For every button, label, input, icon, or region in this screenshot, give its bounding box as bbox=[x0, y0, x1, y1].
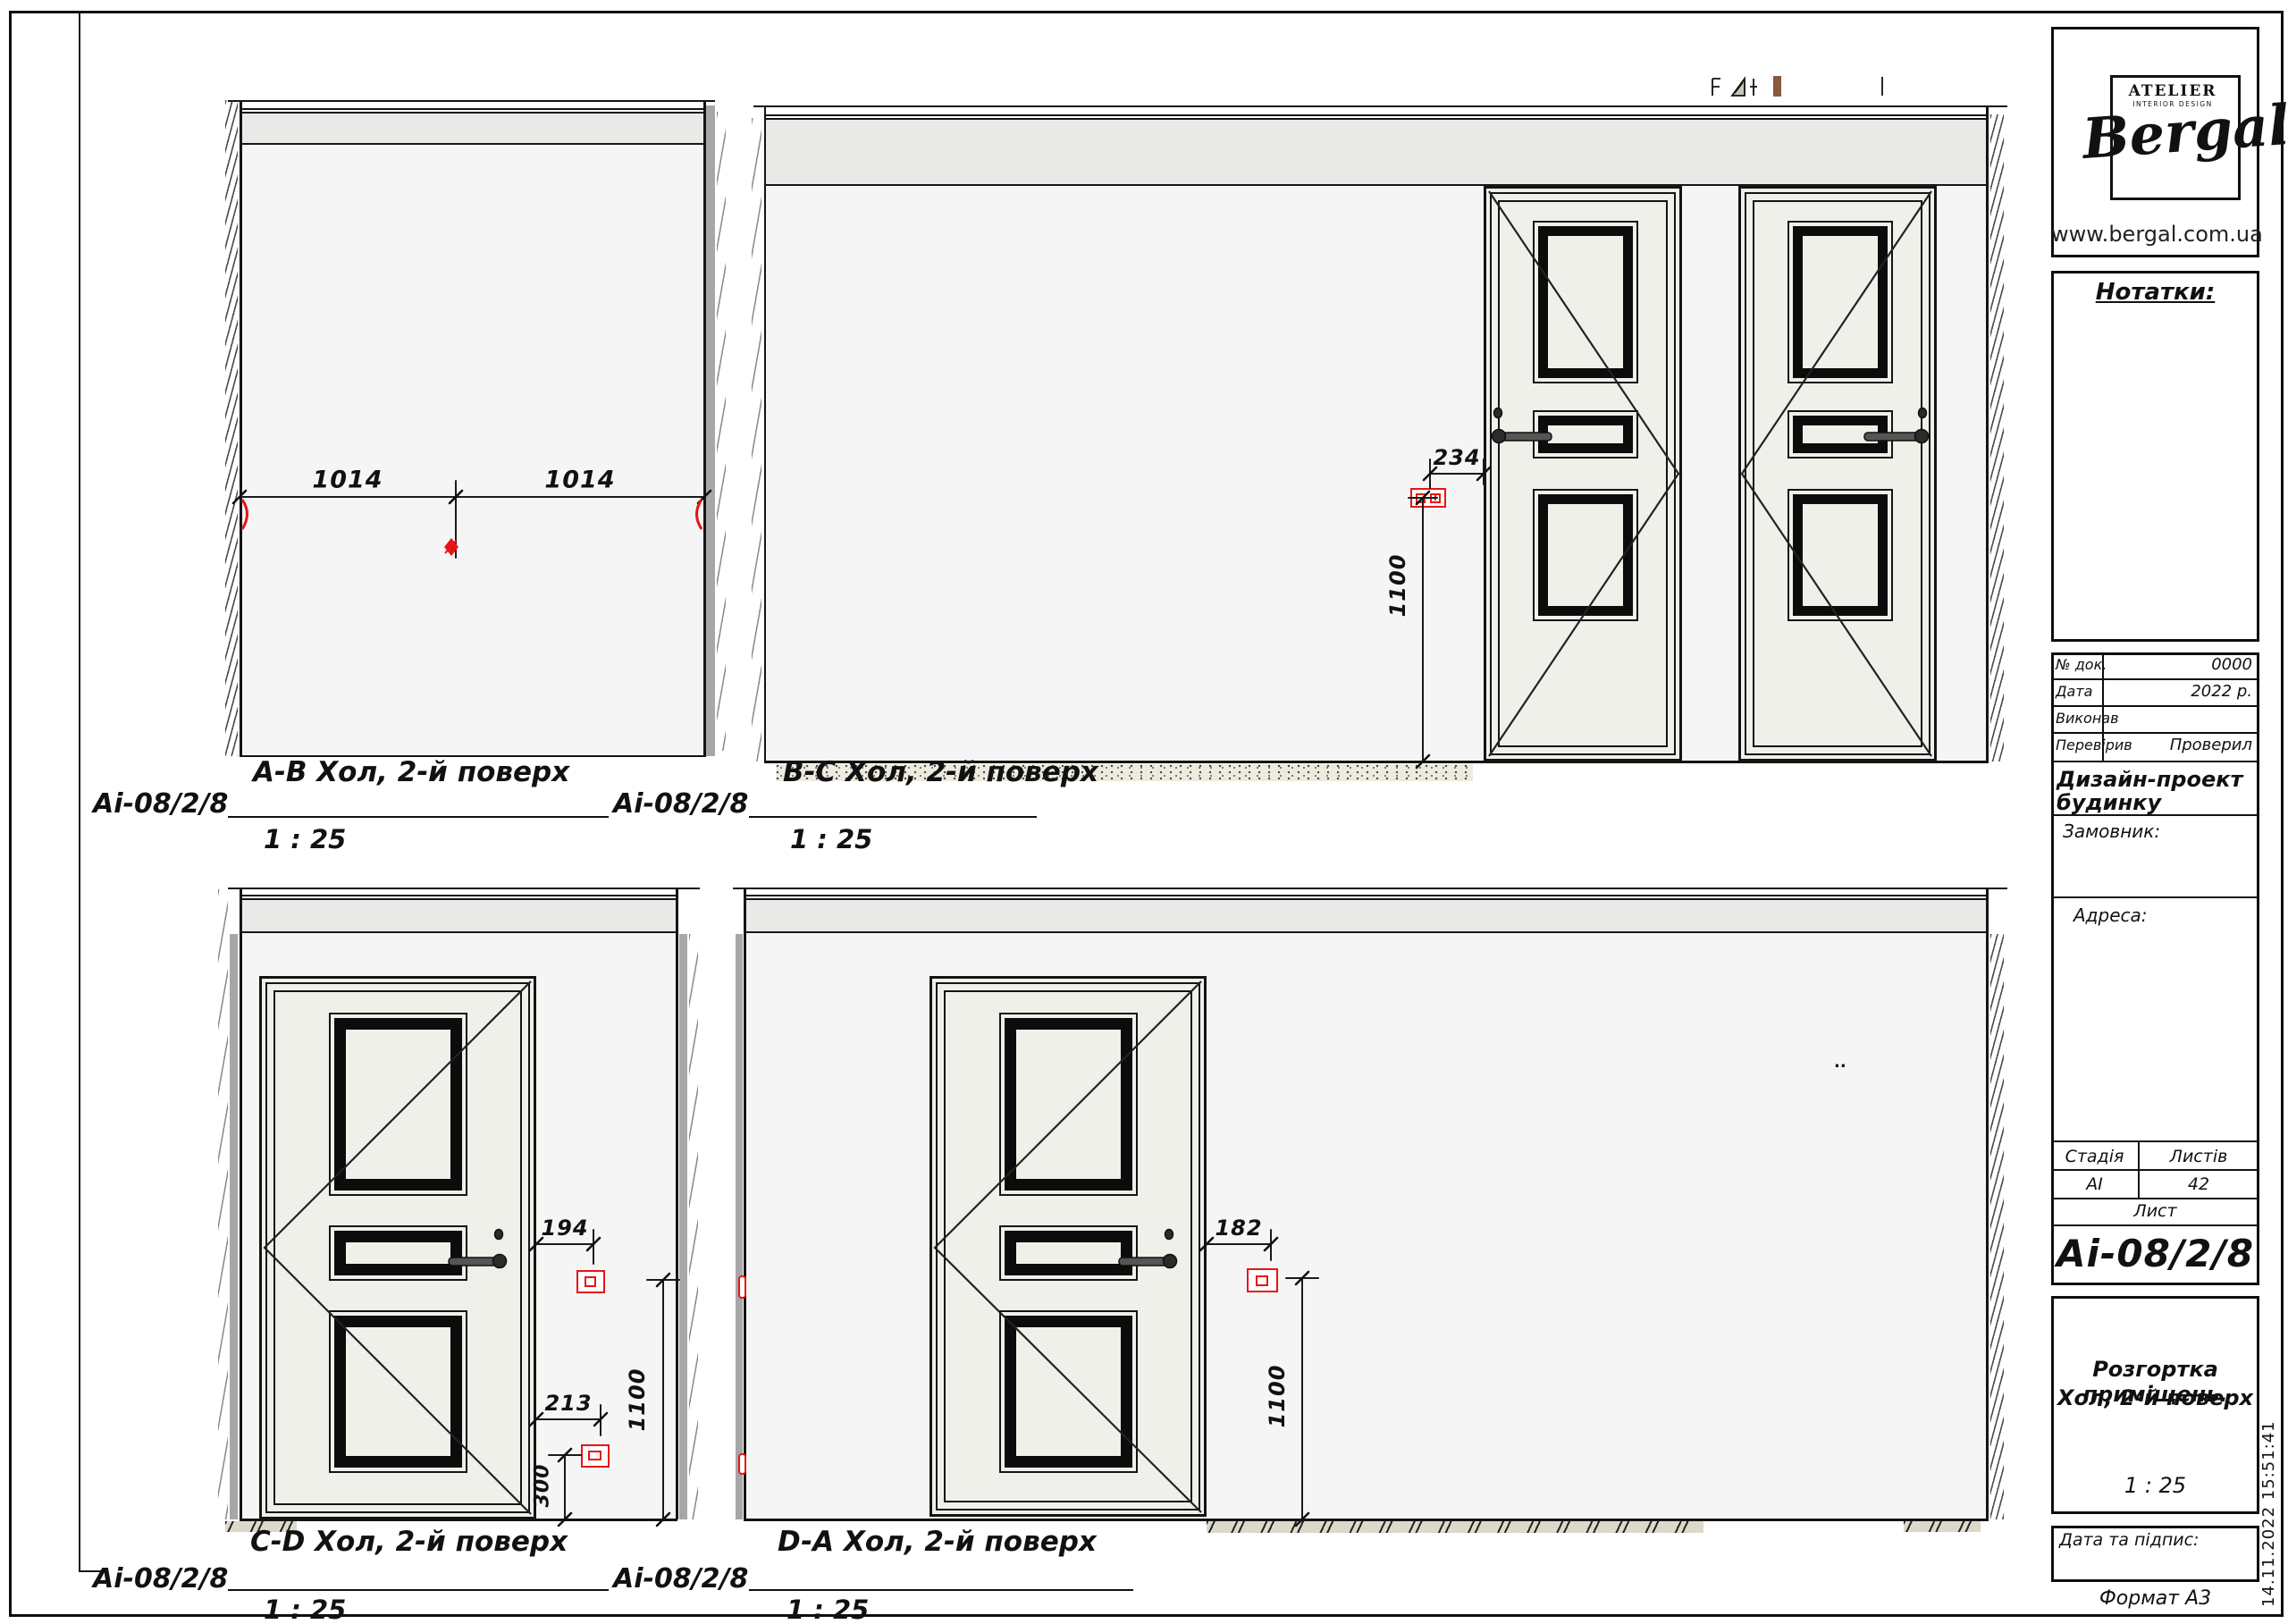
tb-line bbox=[2051, 896, 2259, 898]
doc-row-value: 0000 bbox=[2211, 655, 2252, 674]
client-label: Замовник: bbox=[2063, 820, 2160, 842]
project-title-2: будинку bbox=[2057, 790, 2161, 815]
tb-line bbox=[2138, 1140, 2140, 1198]
drawing-linework bbox=[0, 0, 2288, 1624]
sheets-value: 42 bbox=[2138, 1174, 2259, 1194]
drawing-scale: 1 : 25 bbox=[2051, 1473, 2259, 1498]
bc-view-scale: 1 : 25 bbox=[790, 824, 872, 854]
bc-title-underline bbox=[749, 816, 1037, 818]
doc-row-value: 2022 р. bbox=[2191, 682, 2252, 701]
sheets-header: Листів bbox=[2138, 1147, 2259, 1166]
notes-label: Нотатки: bbox=[2051, 279, 2259, 306]
project-title-1: Дизайн-проект bbox=[2057, 767, 2242, 792]
red-door-swing-marks bbox=[242, 500, 702, 529]
cd-title-underline bbox=[228, 1589, 609, 1591]
logo-website: www.bergal.com.ua bbox=[2051, 222, 2259, 247]
doc-row-3: Перевірив Проверил bbox=[2051, 733, 2259, 762]
drawing-sheet: 1014 1014 234 1100 bbox=[0, 0, 2288, 1624]
doc-row-label: Перевірив bbox=[2056, 736, 2132, 753]
da-view-title: D-А Хол, 2-й поверх bbox=[778, 1526, 1097, 1558]
ab-ref-left: Аі-08/2/8 bbox=[93, 788, 228, 820]
doc-row-1: Дата 2022 р. bbox=[2051, 679, 2259, 707]
stage-value: АІ bbox=[2051, 1174, 2138, 1194]
doc-row-label: Виконав bbox=[2056, 710, 2119, 727]
tb-line bbox=[2051, 1140, 2259, 1142]
doc-row-value: Проверил bbox=[2170, 736, 2252, 754]
ceiling-detail-glyphs bbox=[1712, 77, 1882, 96]
cd-ref-right: Аі-08/2/8 bbox=[613, 1563, 748, 1595]
tb-line bbox=[2051, 1198, 2259, 1199]
ab-ref-right: Аі-08/2/8 bbox=[613, 788, 748, 820]
bc-view-title: В-С Хол, 2-й поверх bbox=[783, 756, 1098, 788]
tb-line bbox=[2051, 814, 2259, 816]
stage-header: Стадія bbox=[2051, 1147, 2138, 1166]
doc-row-label: № док. bbox=[2056, 656, 2107, 673]
tb-line bbox=[2051, 1224, 2259, 1226]
ab-title-underline bbox=[228, 816, 609, 818]
cd-view-scale: 1 : 25 bbox=[264, 1595, 346, 1624]
door-handles bbox=[449, 408, 1929, 1268]
doc-row-0: № док. 0000 bbox=[2051, 652, 2259, 680]
sheet-code: Аі-08/2/8 bbox=[2051, 1232, 2259, 1275]
address-label: Адреса: bbox=[2073, 905, 2148, 926]
sign-label: Дата та підпис: bbox=[2059, 1530, 2199, 1550]
tb-line bbox=[2051, 1169, 2259, 1171]
ab-view-title: А-В Хол, 2-й поверх bbox=[253, 756, 569, 788]
sheet-label: Лист bbox=[2051, 1201, 2259, 1221]
timestamp: 14.11.2022 15:51:41 bbox=[2259, 1384, 2281, 1607]
notes-box bbox=[2051, 271, 2259, 642]
da-title-underline bbox=[749, 1589, 1133, 1591]
doc-row-label: Дата bbox=[2056, 683, 2092, 700]
format-label: Формат А3 bbox=[2051, 1587, 2259, 1610]
doc-row-2: Виконав bbox=[2051, 706, 2259, 734]
da-view-scale: 1 : 25 bbox=[786, 1595, 869, 1624]
cd-ref-left: Аі-08/2/8 bbox=[93, 1563, 228, 1595]
drawing-title-2: Хол, 2-й поверх bbox=[2051, 1385, 2259, 1410]
logo-name: Bergal bbox=[2081, 94, 2266, 172]
cd-view-title: С-D Хол, 2-й поверх bbox=[250, 1526, 568, 1558]
ab-view-scale: 1 : 25 bbox=[264, 824, 346, 854]
